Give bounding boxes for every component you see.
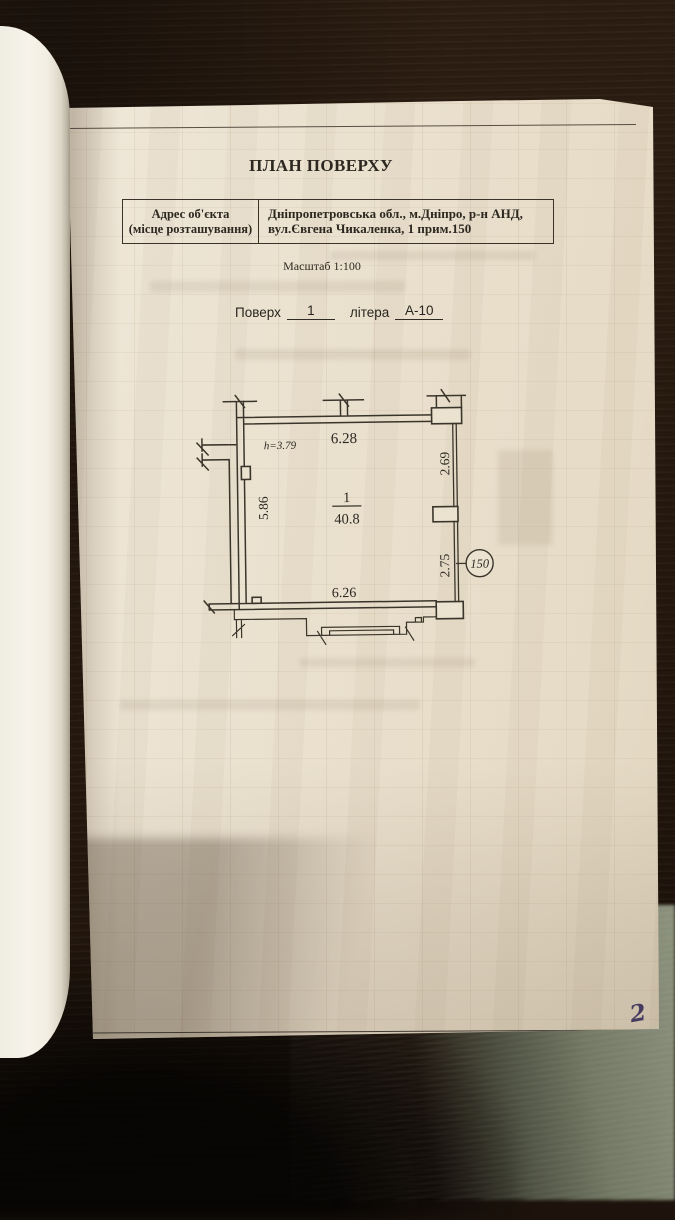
floor-plan-drawing: 6.28 h=3.79 2.69 5.86 2.75 6.26 1 40.8 1… (193, 383, 507, 653)
address-value-line2: вул.Євгена Чикаленка, 1 прим.150 (268, 221, 553, 236)
ceiling-height-label: h=3.79 (264, 440, 297, 452)
pier-bottom-right (436, 601, 463, 618)
dim-right-upper: 2.69 (437, 452, 452, 476)
ink-bleed-smudge (235, 349, 470, 360)
floor-value: 1 (287, 303, 335, 320)
document-page: ПЛАН ПОВЕРХУ Адрес об'єкта (місце розташ… (0, 0, 675, 1200)
corner-notch (252, 597, 261, 603)
dim-left: 5.86 (256, 496, 271, 520)
left-wall-notch (241, 466, 250, 479)
plan-balcony (232, 607, 436, 646)
diagonal-cast-shadow (0, 838, 630, 1043)
plan-walls (196, 389, 468, 613)
letter-value: А-10 (395, 303, 443, 320)
dim-top: 6.28 (331, 431, 357, 447)
page-title: ПЛАН ПОВЕРХУ (221, 156, 421, 176)
room-label: 1 40.8 (334, 490, 360, 528)
ink-bleed-smudge (150, 281, 405, 292)
address-value-line1: Дніпропетровська обл., м.Дніпро, р-н АНД… (268, 206, 553, 221)
ink-bleed-smudge (120, 700, 420, 710)
floor-label: Поверх (235, 305, 281, 320)
address-label-line1: Адрес об'єкта (123, 207, 258, 222)
address-value-cell: Дніпропетровська обл., м.Дніпро, р-н АНД… (259, 200, 553, 243)
ink-bleed-smudge (498, 450, 553, 545)
floor-letter-row: Поверх 1 літера А-10 (235, 303, 443, 320)
room-area: 40.8 (334, 511, 360, 527)
curled-previous-page (0, 26, 70, 1058)
room-number: 1 (343, 490, 350, 506)
address-label-line2: (місце розташування) (123, 222, 258, 237)
scale-label: Масштаб 1:100 (222, 259, 422, 274)
dim-bottom: 6.26 (332, 586, 357, 601)
ink-bleed-smudge (300, 658, 475, 667)
address-label-cell: Адрес об'єкта (місце розташування) (123, 200, 259, 243)
apartment-number: 150 (470, 557, 490, 571)
unit-number-callout: 150 (456, 550, 493, 578)
pier-top-right (431, 407, 461, 423)
letter-label: літера (350, 305, 389, 320)
dim-right-lower: 2.75 (437, 554, 452, 578)
pier-mid-right (433, 506, 458, 521)
address-table: Адрес об'єкта (місце розташування) Дніпр… (122, 199, 554, 244)
